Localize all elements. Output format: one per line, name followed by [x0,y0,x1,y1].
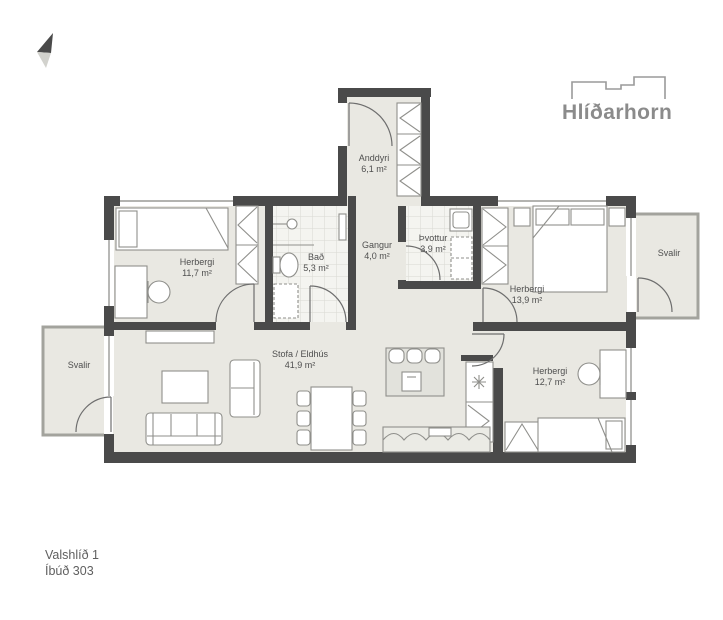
laundry-fixtures [450,209,472,279]
kitchen-counter [383,427,490,452]
footer: Valshlíð 1 Íbúð 303 [45,547,99,579]
logo-text: Hlíðarhorn [562,101,672,125]
bedroom1-wardrobe [236,206,258,284]
bedroom1-bed [116,208,228,250]
loveseat [230,360,260,417]
footer-address: Valshlíð 1 [45,547,99,563]
dining-table [297,387,366,450]
north-arrow-icon [37,33,53,68]
sofa [146,413,222,445]
bedroom3-bed [538,418,625,452]
kitchen-island [386,348,444,396]
tv-bench [146,331,214,343]
balcony-left [43,327,104,435]
bedroom3-wardrobe [505,422,539,452]
entry-wardrobe [397,103,421,196]
coffee-table [162,371,208,403]
footer-apartment: Íbúð 303 [45,563,99,579]
logo-building-icon [572,77,665,99]
floor-plan-drawing [0,0,723,620]
balcony-right [636,214,698,318]
master-wardrobe [482,208,508,284]
